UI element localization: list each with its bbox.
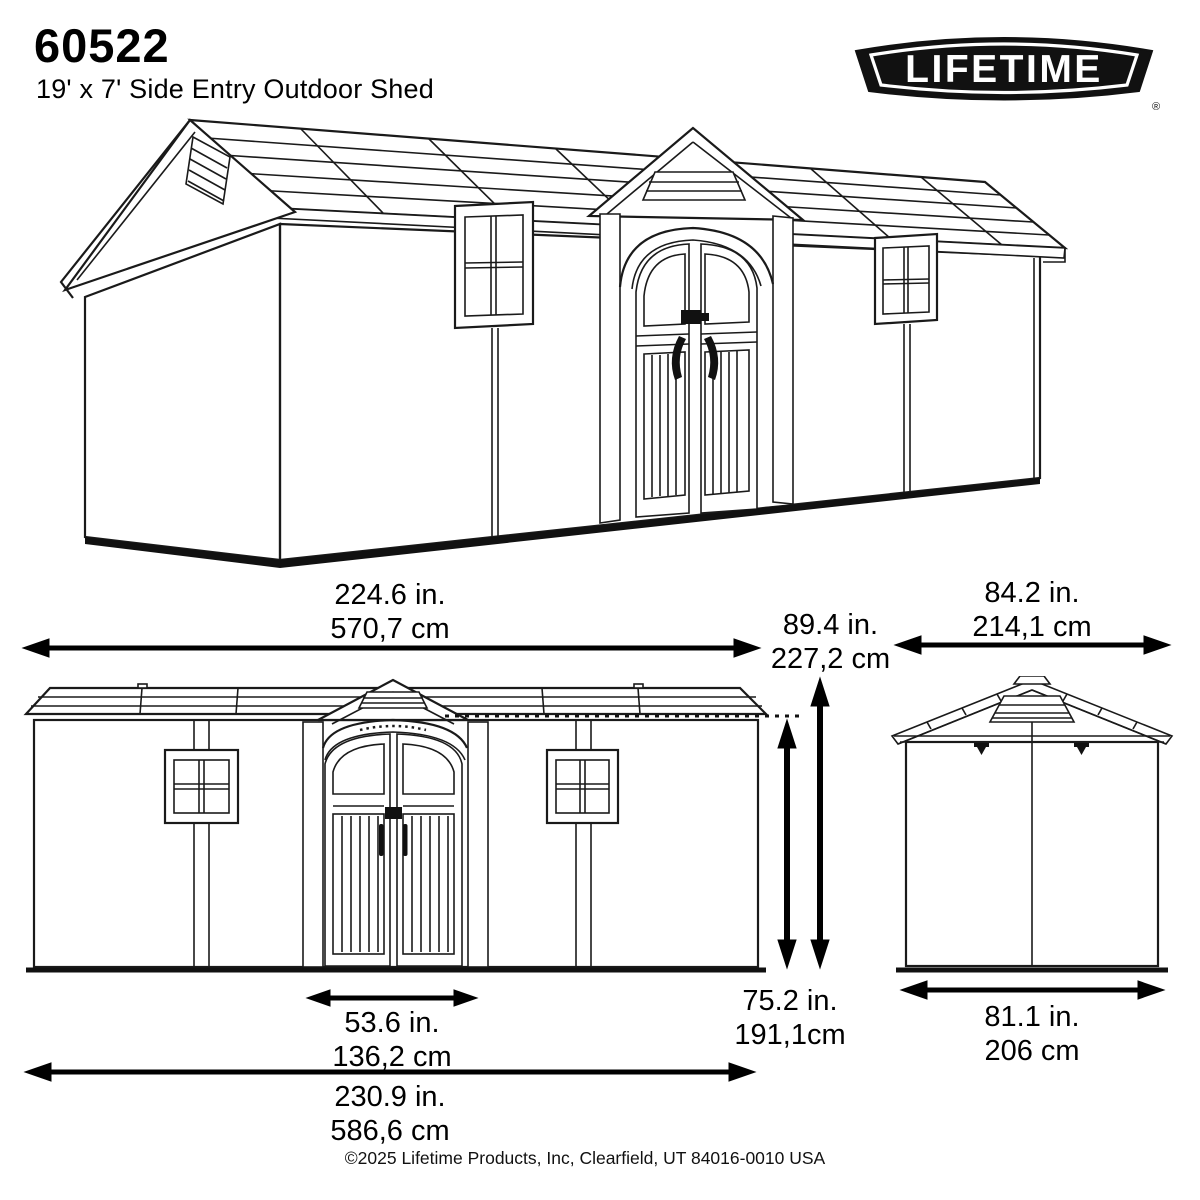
dim-overall-width-cm: 570,7 cm [240, 612, 540, 646]
dim-side-width-label: 84.2 in. 214,1 cm [907, 576, 1157, 644]
dim-side-base-width-label: 81.1 in. 206 cm [932, 1000, 1132, 1068]
dim-total-width-label: 230.9 in. 586,6 cm [240, 1080, 540, 1148]
dim-eave-height-in: 75.2 in. [690, 984, 890, 1018]
dim-overall-width-in: 224.6 in. [240, 578, 540, 612]
copyright-line: ©2025 Lifetime Products, Inc, Clearfield… [0, 1148, 1170, 1169]
dim-door-width-arrow [307, 990, 477, 1006]
spec-sheet: 60522 19' x 7' Side Entry Outdoor Shed L… [0, 0, 1200, 1200]
dim-side-base-width-in: 81.1 in. [932, 1000, 1132, 1034]
dim-peak-height-arrow [811, 678, 829, 968]
dim-eave-height-arrow [778, 720, 796, 968]
dim-door-width-in: 53.6 in. [292, 1006, 492, 1040]
dim-peak-height-in: 89.4 in. [728, 608, 933, 642]
dim-total-width-cm: 586,6 cm [240, 1114, 540, 1148]
dim-side-base-width-cm: 206 cm [932, 1034, 1132, 1068]
dim-side-base-width-arrow [901, 981, 1164, 999]
dim-eave-height-cm: 191,1cm [690, 1018, 890, 1052]
dim-door-width-label: 53.6 in. 136,2 cm [292, 1006, 492, 1074]
dim-side-width-in: 84.2 in. [907, 576, 1157, 610]
dim-door-width-cm: 136,2 cm [292, 1040, 492, 1074]
dim-side-width-cm: 214,1 cm [907, 610, 1157, 644]
dim-peak-height-cm: 227,2 cm [728, 642, 933, 676]
dim-eave-height-label: 75.2 in. 191,1cm [690, 984, 890, 1052]
dim-total-width-in: 230.9 in. [240, 1080, 540, 1114]
dim-overall-width-label: 224.6 in. 570,7 cm [240, 578, 540, 646]
dim-peak-height-label: 89.4 in. 227,2 cm [728, 608, 933, 676]
